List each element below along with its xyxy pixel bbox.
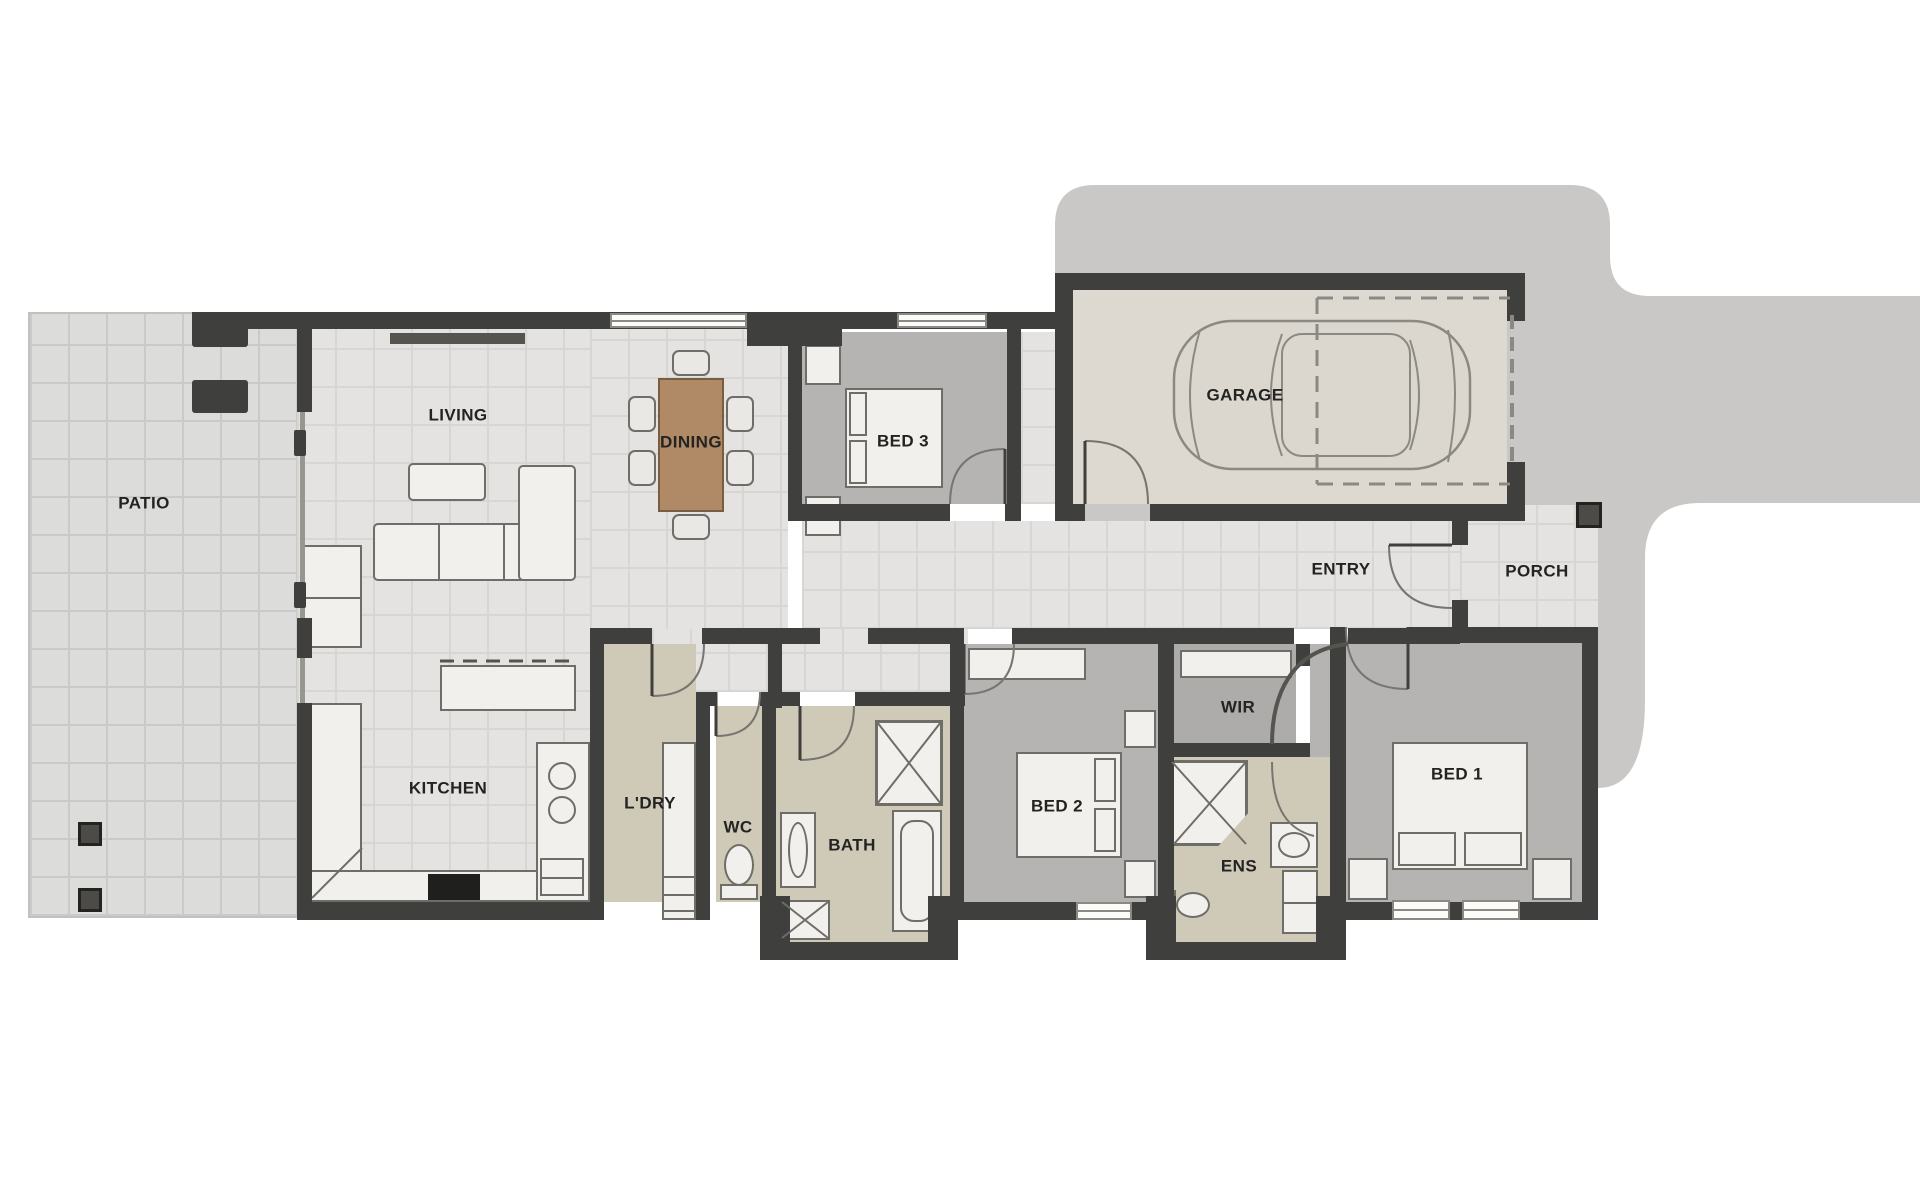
room-label-wc: WC <box>723 819 752 836</box>
room-label-kitchen: KITCHEN <box>409 780 487 797</box>
symbols-overlay <box>0 0 1920 1200</box>
bump-shower-cross <box>782 902 828 938</box>
room-label-living: LIVING <box>428 407 487 424</box>
room-label-porch: PORCH <box>1505 563 1568 580</box>
room-label-ens: ENS <box>1221 858 1257 875</box>
wir-curved-wall <box>1272 644 1348 744</box>
room-label-entry: ENTRY <box>1312 561 1371 578</box>
door-leaves <box>652 441 1452 760</box>
ens-shower-cross <box>1172 762 1246 844</box>
floor-plan: PATIO LIVING DINING BED 3 GARAGE ENTRY P… <box>0 0 1920 1200</box>
room-label-dining: DINING <box>660 434 722 451</box>
bench-corner-line <box>312 848 362 898</box>
room-label-bed2: BED 2 <box>1031 798 1083 815</box>
room-label-bed3: BED 3 <box>877 433 929 450</box>
room-label-bath: BATH <box>828 837 876 854</box>
room-label-laundry: L'DRY <box>624 795 676 812</box>
bath-shower-cross <box>877 722 941 804</box>
room-label-bed1: BED 1 <box>1431 766 1483 783</box>
door-arcs <box>652 441 1452 836</box>
room-label-garage: GARAGE <box>1206 387 1283 404</box>
room-label-wir: WIR <box>1221 699 1255 716</box>
room-label-patio: PATIO <box>118 495 169 512</box>
